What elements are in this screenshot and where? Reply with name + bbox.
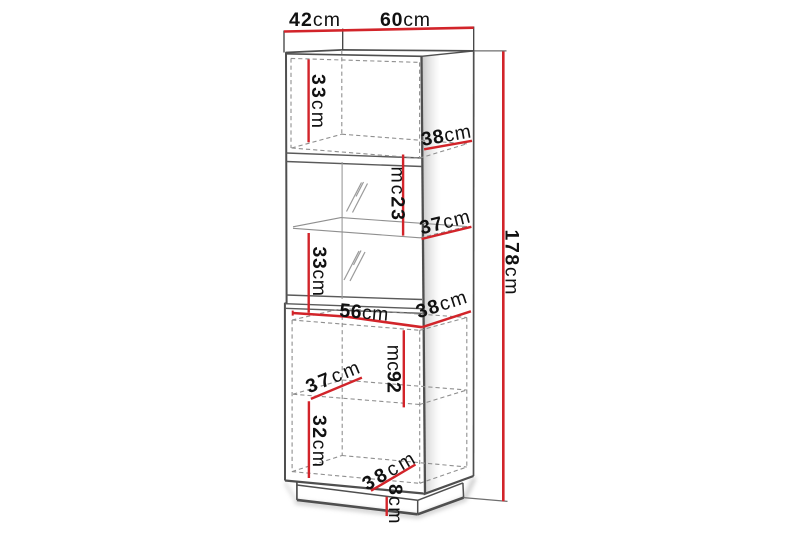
svg-text:56cm: 56cm bbox=[339, 300, 390, 326]
svg-text:33cm: 33cm bbox=[307, 74, 329, 128]
svg-text:33cm: 33cm bbox=[308, 247, 330, 297]
svg-text:42cm: 42cm bbox=[289, 9, 340, 31]
svg-text:32cm: 32cm bbox=[308, 415, 330, 467]
svg-text:mc23: mc23 bbox=[387, 167, 409, 221]
svg-text:178cm: 178cm bbox=[501, 230, 523, 295]
svg-text:8cm: 8cm bbox=[384, 484, 406, 524]
svg-text:mc92: mc92 bbox=[382, 345, 404, 393]
svg-text:60cm: 60cm bbox=[380, 9, 430, 31]
